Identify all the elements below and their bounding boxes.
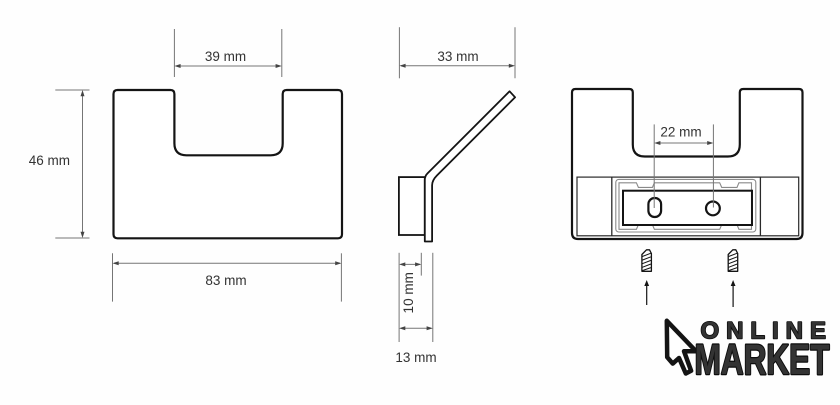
svg-text:83 mm: 83 mm xyxy=(205,273,246,288)
svg-text:MARKET: MARKET xyxy=(695,337,830,384)
svg-text:22 mm: 22 mm xyxy=(660,125,701,140)
svg-text:33 mm: 33 mm xyxy=(437,49,478,64)
svg-text:46 mm: 46 mm xyxy=(29,153,70,168)
svg-text:13 mm: 13 mm xyxy=(395,350,436,365)
svg-text:39 mm: 39 mm xyxy=(205,49,246,64)
svg-text:10 mm: 10 mm xyxy=(401,272,416,313)
